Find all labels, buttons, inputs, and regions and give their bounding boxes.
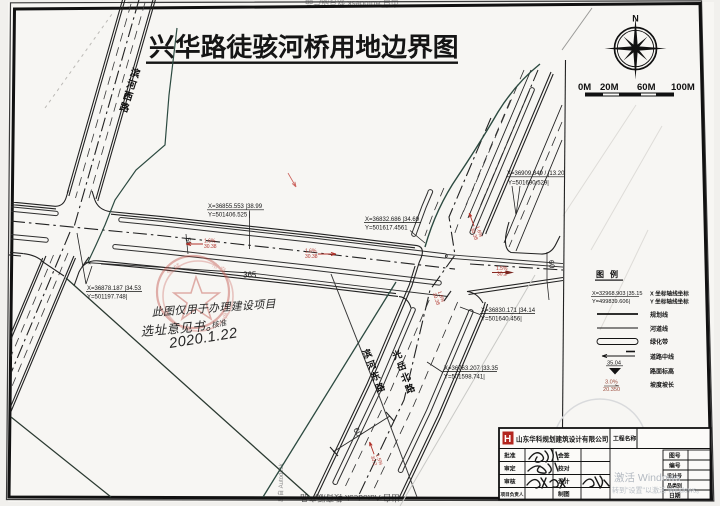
svg-text:Y=501617.4561: Y=501617.4561 <box>365 226 408 232</box>
svg-text:Y=501197.748|: Y=501197.748| <box>87 295 128 301</box>
svg-text:工程名称: 工程名称 <box>613 435 636 443</box>
svg-text:H: H <box>504 434 511 445</box>
svg-text:100M: 100M <box>671 82 695 93</box>
svg-text:0M: 0M <box>578 82 591 93</box>
svg-text:规划线: 规划线 <box>650 311 668 319</box>
svg-text:激活 Windows: 激活 Windows <box>614 471 681 484</box>
svg-text:路面标高: 路面标高 <box>650 368 674 376</box>
svg-text:道路中线: 道路中线 <box>650 353 674 361</box>
svg-text:20M: 20M <box>600 82 619 93</box>
svg-text:X=36832.686 |34.69: X=36832.686 |34.69 <box>365 217 420 223</box>
svg-text:30.38: 30.38 <box>204 244 217 250</box>
svg-text:X=36763.207 |33.35: X=36763.207 |33.35 <box>444 366 499 372</box>
svg-text:批准: 批准 <box>504 452 516 460</box>
svg-text:编号: 编号 <box>669 462 681 470</box>
svg-text:X=36855.553 |38.99: X=36855.553 |38.99 <box>208 204 263 210</box>
svg-text:X=36830.171 |34.14: X=36830.171 |34.14 <box>481 308 536 314</box>
svg-text:Y=501598.741|: Y=501598.741| <box>444 375 485 381</box>
svg-text:60M: 60M <box>637 82 656 93</box>
svg-text:X 坐标轴线坐标: X 坐标轴线坐标 <box>650 290 689 298</box>
svg-text:审定: 审定 <box>504 465 516 473</box>
svg-text:审核: 审核 <box>504 478 516 486</box>
svg-text:山东华科规划建筑设计有限公司: 山东华科规划建筑设计有限公司 <box>516 435 608 444</box>
svg-text:30.38: 30.38 <box>305 254 318 260</box>
svg-text:60: 60 <box>547 259 557 268</box>
svg-text:X=36878.187 |34.53: X=36878.187 |34.53 <box>87 286 142 292</box>
svg-text:X=36909.849 / |13.20: X=36909.849 / |13.20 <box>507 171 565 177</box>
svg-text:N: N <box>632 14 639 24</box>
svg-text:Y=501690.529|: Y=501690.529| <box>508 181 549 187</box>
svg-text:坡度坡长: 坡度坡长 <box>650 381 675 389</box>
svg-text:项目负责人: 项目负责人 <box>501 491 524 498</box>
svg-text:会签: 会签 <box>558 452 570 460</box>
svg-text:*: * <box>88 261 91 270</box>
svg-text:兴华路徒骇河桥用地边界图: 兴华路徒骇河桥用地边界图 <box>149 32 459 62</box>
svg-text:河道线: 河道线 <box>650 325 668 333</box>
svg-text:图号: 图号 <box>669 452 681 460</box>
svg-text:Y=499839.606|: Y=499839.606| <box>592 299 630 305</box>
svg-text:Y=501406.525 |: Y=501406.525 | <box>208 213 251 219</box>
svg-text:绿化带: 绿化带 <box>650 338 668 346</box>
svg-text:校对: 校对 <box>558 465 570 473</box>
svg-text:图例: 图例 <box>596 269 624 279</box>
svg-text:Y=501640.456|: Y=501640.456| <box>481 317 522 323</box>
svg-text:制图: 制图 <box>558 490 570 498</box>
svg-text:转到"设置"以激活 Windows。: 转到"设置"以激活 Windows。 <box>612 486 703 495</box>
svg-text:Y 坐标轴线坐标: Y 坐标轴线坐标 <box>650 298 689 306</box>
svg-text:365: 365 <box>243 271 257 280</box>
svg-text:3.0%: 3.0% <box>605 380 618 386</box>
svg-text:20.350: 20.350 <box>603 387 620 393</box>
